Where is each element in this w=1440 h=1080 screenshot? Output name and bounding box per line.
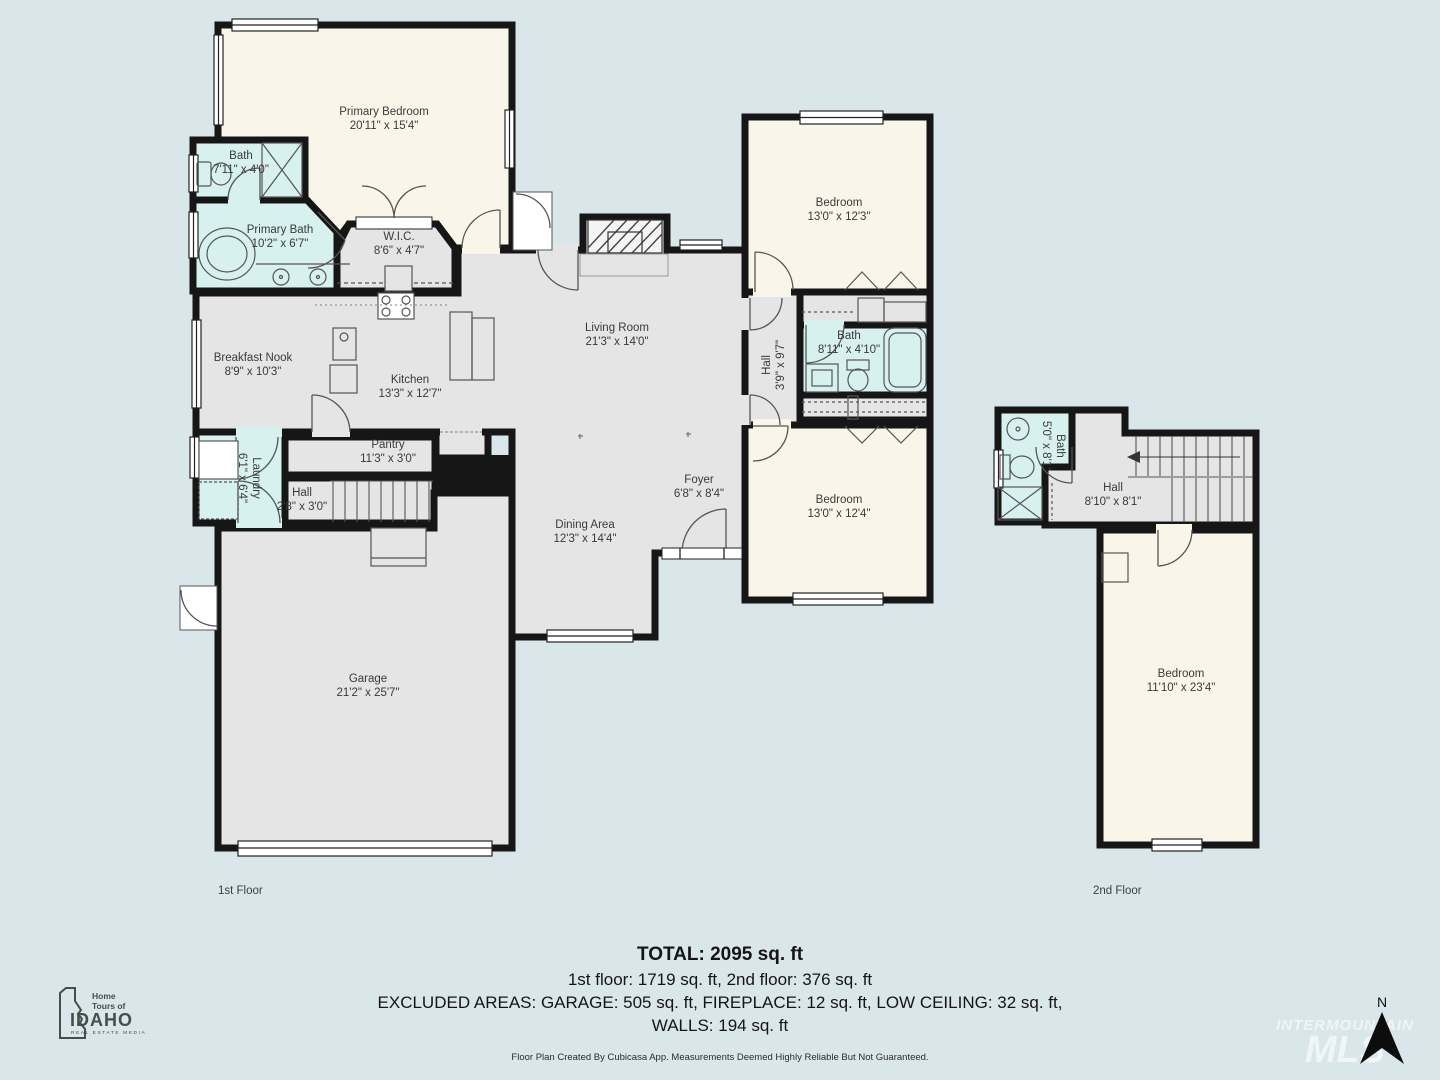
area-summary: TOTAL: 2095 sq. ft 1st floor: 1719 sq. f… — [0, 944, 1440, 1063]
floor1-caption: 1st Floor — [218, 885, 263, 897]
room-label-living-room: Living Room21'3" x 14'0" — [585, 321, 649, 349]
room-label-foyer: Foyer6'8" x 8'4" — [674, 473, 724, 501]
excluded-areas: EXCLUDED AREAS: GARAGE: 505 sq. ft, FIRE… — [0, 993, 1440, 1013]
room-hall-2f — [1045, 410, 1256, 525]
north-label: N — [1352, 994, 1412, 1010]
room-label-laundry: Laundry6'1" x 6'4" — [235, 453, 263, 503]
compass: N — [1352, 994, 1412, 1075]
room-garage — [218, 493, 512, 848]
logo-name: IDAHO — [70, 1010, 133, 1031]
room-label-bedroom-1: Bedroom13'0" x 12'3" — [807, 196, 870, 224]
room-label-primary-bedroom: Primary Bedroom20'11" x 15'4" — [339, 105, 428, 133]
room-label-bath-1: Bath8'11" x 4'10" — [818, 329, 880, 357]
room-label-bedroom-2f: Bedroom11'10" x 23'4" — [1147, 667, 1216, 695]
logo-tagline: Real Estate Media — [71, 1031, 146, 1036]
floor2-caption: 2nd Floor — [1093, 885, 1142, 897]
room-label-pantry: Pantry11'3" x 3'0" — [360, 438, 416, 466]
room-label-garage: Garage21'2" x 25'7" — [336, 672, 399, 700]
room-label-bath-2f: Bath5'0" x 8'1" — [1039, 421, 1067, 471]
floor2-rooms — [998, 410, 1256, 845]
water-heater — [371, 528, 426, 566]
room-closet-strip — [800, 395, 930, 420]
room-label-bath-upper: Bath7'11" x 4'0" — [213, 149, 269, 177]
room-label-dining-area: Dining Area12'3" x 14'4" — [553, 518, 616, 546]
home-tours-of-idaho-logo: Home Tours of IDAHO Real Estate Media — [58, 986, 178, 1046]
total-area: TOTAL: 2095 sq. ft — [0, 944, 1440, 966]
room-label-wic: W.I.C.8'6" x 4'7" — [374, 230, 424, 258]
disclaimer: Floor Plan Created By Cubicasa App. Meas… — [0, 1052, 1440, 1063]
room-label-breakfast-nook: Breakfast Nook8'9" x 10'3" — [214, 351, 293, 379]
walls-area: WALLS: 194 sq. ft — [0, 1016, 1440, 1036]
floor-areas: 1st floor: 1719 sq. ft, 2nd floor: 376 s… — [0, 970, 1440, 990]
floor1-rooms — [193, 25, 930, 848]
room-label-bedroom-2: Bedroom13'0" x 12'4" — [807, 493, 870, 521]
wall-mass — [432, 455, 512, 496]
floor-plan-page: Primary Bedroom20'11" x 15'4" Bath7'11" … — [0, 0, 1440, 1080]
north-arrow-icon — [1354, 1010, 1410, 1070]
room-label-primary-bath: Primary Bath10'2" x 6'7" — [247, 223, 313, 251]
room-label-hall-small: Hall2'8" x 3'0" — [277, 486, 327, 514]
room-label-kitchen: Kitchen13'3" x 12'7" — [378, 373, 441, 401]
washer-icon — [199, 441, 238, 479]
stairs-floor1 — [330, 481, 433, 522]
room-label-hall-2f: Hall8'10" x 8'1" — [1085, 481, 1142, 509]
room-label-hall-vertical: Hall3'9" x 9'7" — [760, 340, 788, 390]
